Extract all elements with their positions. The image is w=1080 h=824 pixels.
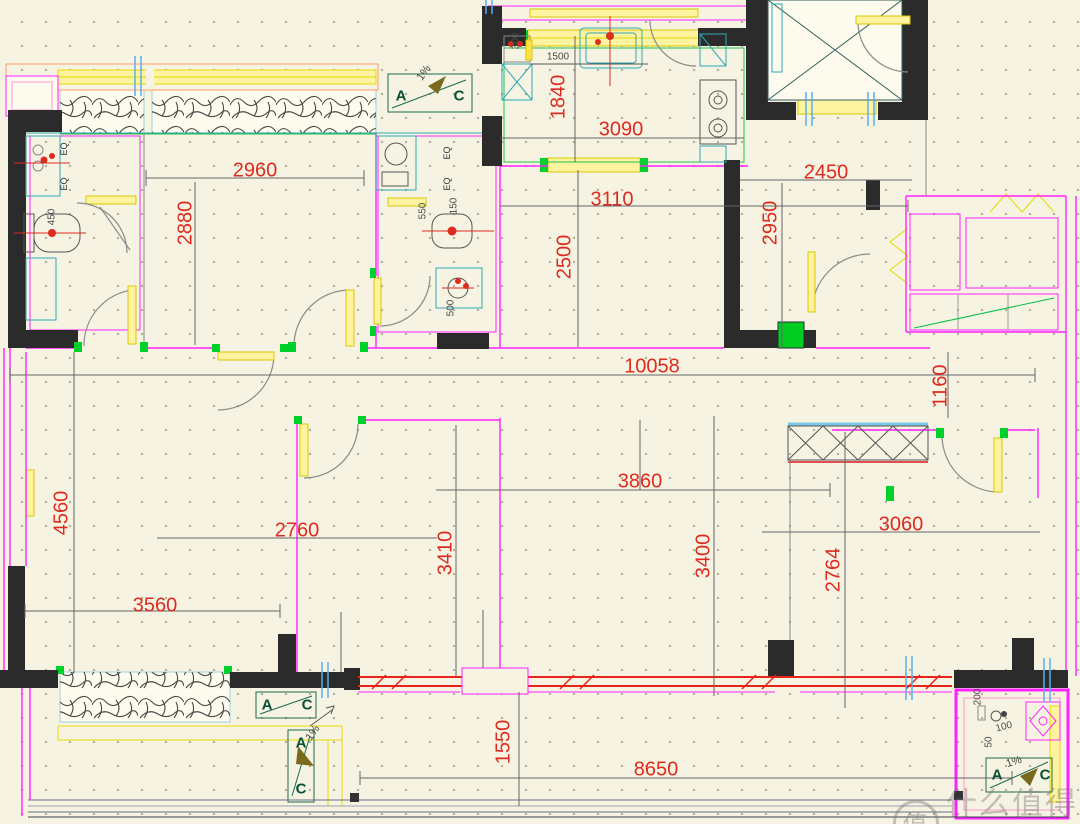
- dim-small-450: 450: [47, 209, 58, 226]
- ac-letter-c: C: [454, 88, 465, 105]
- dim-small-150: 150: [449, 198, 460, 215]
- dim-small-500: 500: [446, 300, 457, 317]
- ac-letter-a: A: [396, 88, 407, 105]
- ac-letter-a: A: [262, 697, 273, 714]
- ac-letter-a: A: [296, 735, 307, 752]
- dim-bed1-height: 2880: [175, 201, 198, 246]
- dim-living-width: 3860: [618, 471, 663, 494]
- dim-kitchen-width: 3090: [599, 119, 644, 142]
- balcony-hatch-areas: [56, 90, 376, 722]
- eq-label: EQ: [442, 146, 452, 159]
- watermark-text: 什么值得买: [946, 778, 1080, 824]
- dim-bed3-height: 2764: [823, 548, 846, 593]
- dim-kitchen-depth: 1840: [548, 75, 571, 120]
- dim-balcony-width: 8650: [634, 759, 679, 782]
- ac-letter-c: C: [302, 697, 313, 714]
- dim-living-height: 3400: [693, 534, 716, 579]
- dim-bed1-width: 2960: [233, 160, 278, 183]
- dim-hall-depth: 2500: [554, 235, 577, 280]
- dim-bed2-height: 3410: [435, 531, 458, 576]
- dim-small-200: 200: [973, 689, 984, 706]
- eq-label: EQ: [442, 177, 452, 190]
- dim-left-room-height: 4560: [51, 491, 74, 536]
- dim-foyer-height: 2950: [760, 201, 783, 246]
- dim-overall-width: 10058: [624, 356, 680, 379]
- floor-plan-canvas: 2960 2880 1500 1840 3090 3110 2450 2950 …: [0, 0, 1080, 824]
- dim-bed3-width: 3060: [879, 514, 924, 537]
- sliding-door-band: [358, 668, 952, 694]
- watermark-badge: 值: [893, 800, 939, 824]
- dim-left-room-width: 3560: [133, 595, 178, 618]
- floor-plan-drawing: [0, 0, 1080, 824]
- dim-balcony-depth: 1550: [493, 720, 516, 765]
- ac-letter-c: C: [296, 781, 307, 798]
- dim-small-50: 50: [984, 736, 995, 747]
- watermark: 值 什么值得买: [893, 778, 1080, 824]
- elevator-shaft: [768, 0, 902, 100]
- dim-small-550: 550: [418, 203, 429, 220]
- dim-kitchen-counter: 1500: [547, 52, 569, 63]
- eq-label: EQ: [59, 177, 69, 190]
- eq-label: EQ: [59, 142, 69, 155]
- dim-small-300: 300: [511, 33, 522, 50]
- dim-foyer-width: 2450: [804, 162, 849, 185]
- dim-right-offset: 1160: [930, 364, 953, 407]
- right-top-rooms: [886, 214, 1058, 501]
- dim-hall-width: 3110: [590, 189, 633, 212]
- dim-bed2-width: 2760: [275, 520, 320, 543]
- bathroom2-fixtures: [376, 136, 494, 308]
